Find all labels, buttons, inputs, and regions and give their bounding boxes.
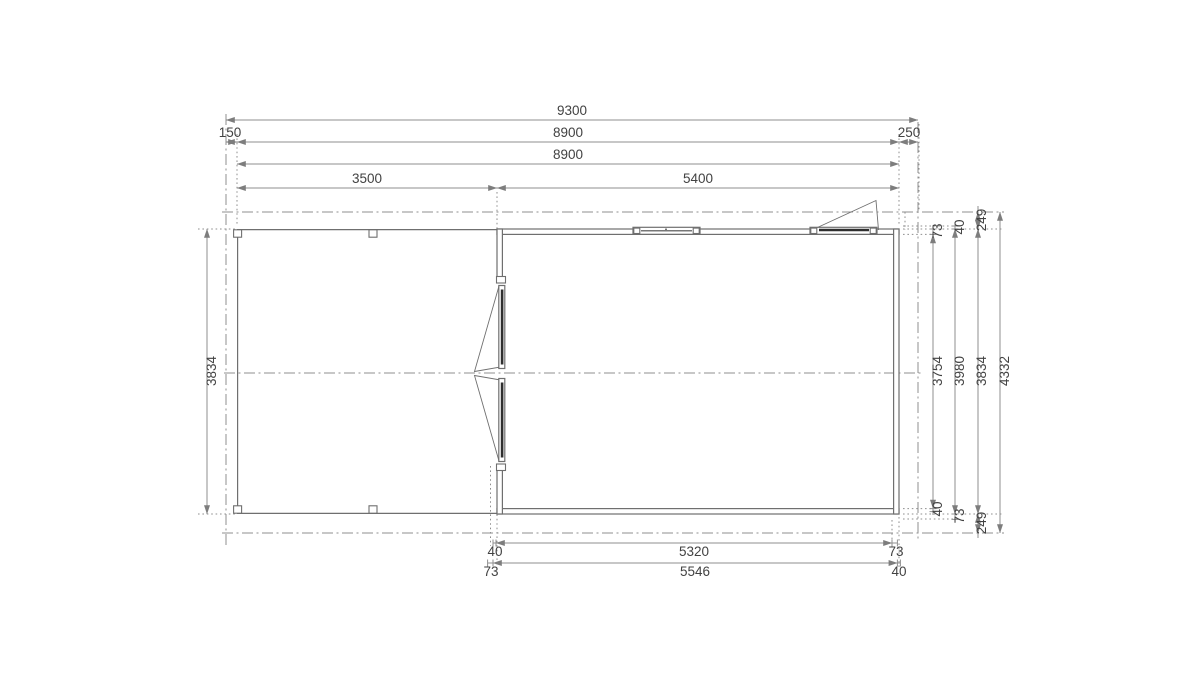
- floor-plan-page: 9300 150 8900 250 8900 3500 5400 3834 73…: [0, 0, 1200, 675]
- dim-right-wall-top: 73: [930, 223, 945, 238]
- dim-bottom-row2-mid: 5546: [680, 564, 710, 579]
- dim-top-carport-width: 3500: [352, 171, 382, 186]
- dim-bottom-row1-mid: 5320: [679, 544, 709, 559]
- cabin-bottom-wall: [497, 509, 899, 514]
- extension-lines: [198, 124, 1004, 567]
- dim-right-interior-depth: 3754: [930, 355, 945, 386]
- cabin-left-wall-upper: [497, 229, 502, 282]
- floor-plan-drawing: 9300 150 8900 250 8900 3500 5400 3834 73…: [0, 0, 1200, 675]
- window-tilt: [810, 201, 879, 235]
- cabin-walls: [497, 229, 899, 514]
- dim-top-left-overhang: 150: [219, 125, 242, 140]
- dim-left-side-depth: 3834: [204, 355, 219, 386]
- window-fixed: [633, 227, 700, 234]
- cabin-right-wall: [894, 229, 899, 514]
- dim-top-cabin-width: 5400: [683, 171, 713, 186]
- dim-bottom-row1-right: 73: [888, 544, 903, 559]
- dim-right-roof-overhang-bottom: 249: [974, 512, 989, 535]
- cabin-left-wall-lower: [497, 465, 502, 514]
- carport-post: [369, 230, 377, 237]
- dim-bottom-row2-right: 40: [891, 564, 906, 579]
- dim-right-log-bottom: 73: [952, 508, 967, 523]
- door-jamb: [497, 464, 506, 471]
- dim-right-wall-outer-depth: 3980: [952, 356, 967, 386]
- carport-post: [234, 506, 242, 513]
- dim-right-roof-overhang-top: 249: [974, 209, 989, 232]
- dim-top-overall: 9300: [557, 103, 587, 118]
- carport-post: [234, 230, 242, 237]
- door-jamb: [497, 277, 506, 284]
- dim-top-frame-width: 8900: [553, 147, 583, 162]
- dim-bottom-row1-left: 40: [487, 544, 502, 559]
- dimension-lines: [207, 120, 1000, 567]
- dim-bottom-row2-left: 73: [483, 564, 498, 579]
- carport-post: [369, 506, 377, 513]
- dimension-labels: 9300 150 8900 250 8900 3500 5400 3834 73…: [204, 103, 1012, 579]
- carport: [234, 229, 497, 513]
- dim-right-wall-bottom-inner: 40: [930, 501, 945, 516]
- dim-right-log-top: 40: [952, 219, 967, 234]
- roof-overhang-outline: [222, 114, 1004, 546]
- dim-right-overall-depth: 4332: [997, 356, 1012, 386]
- dim-top-outer-width: 8900: [553, 125, 583, 140]
- dim-top-right-overhang: 250: [898, 125, 921, 140]
- dim-right-side-depth: 3834: [974, 355, 989, 386]
